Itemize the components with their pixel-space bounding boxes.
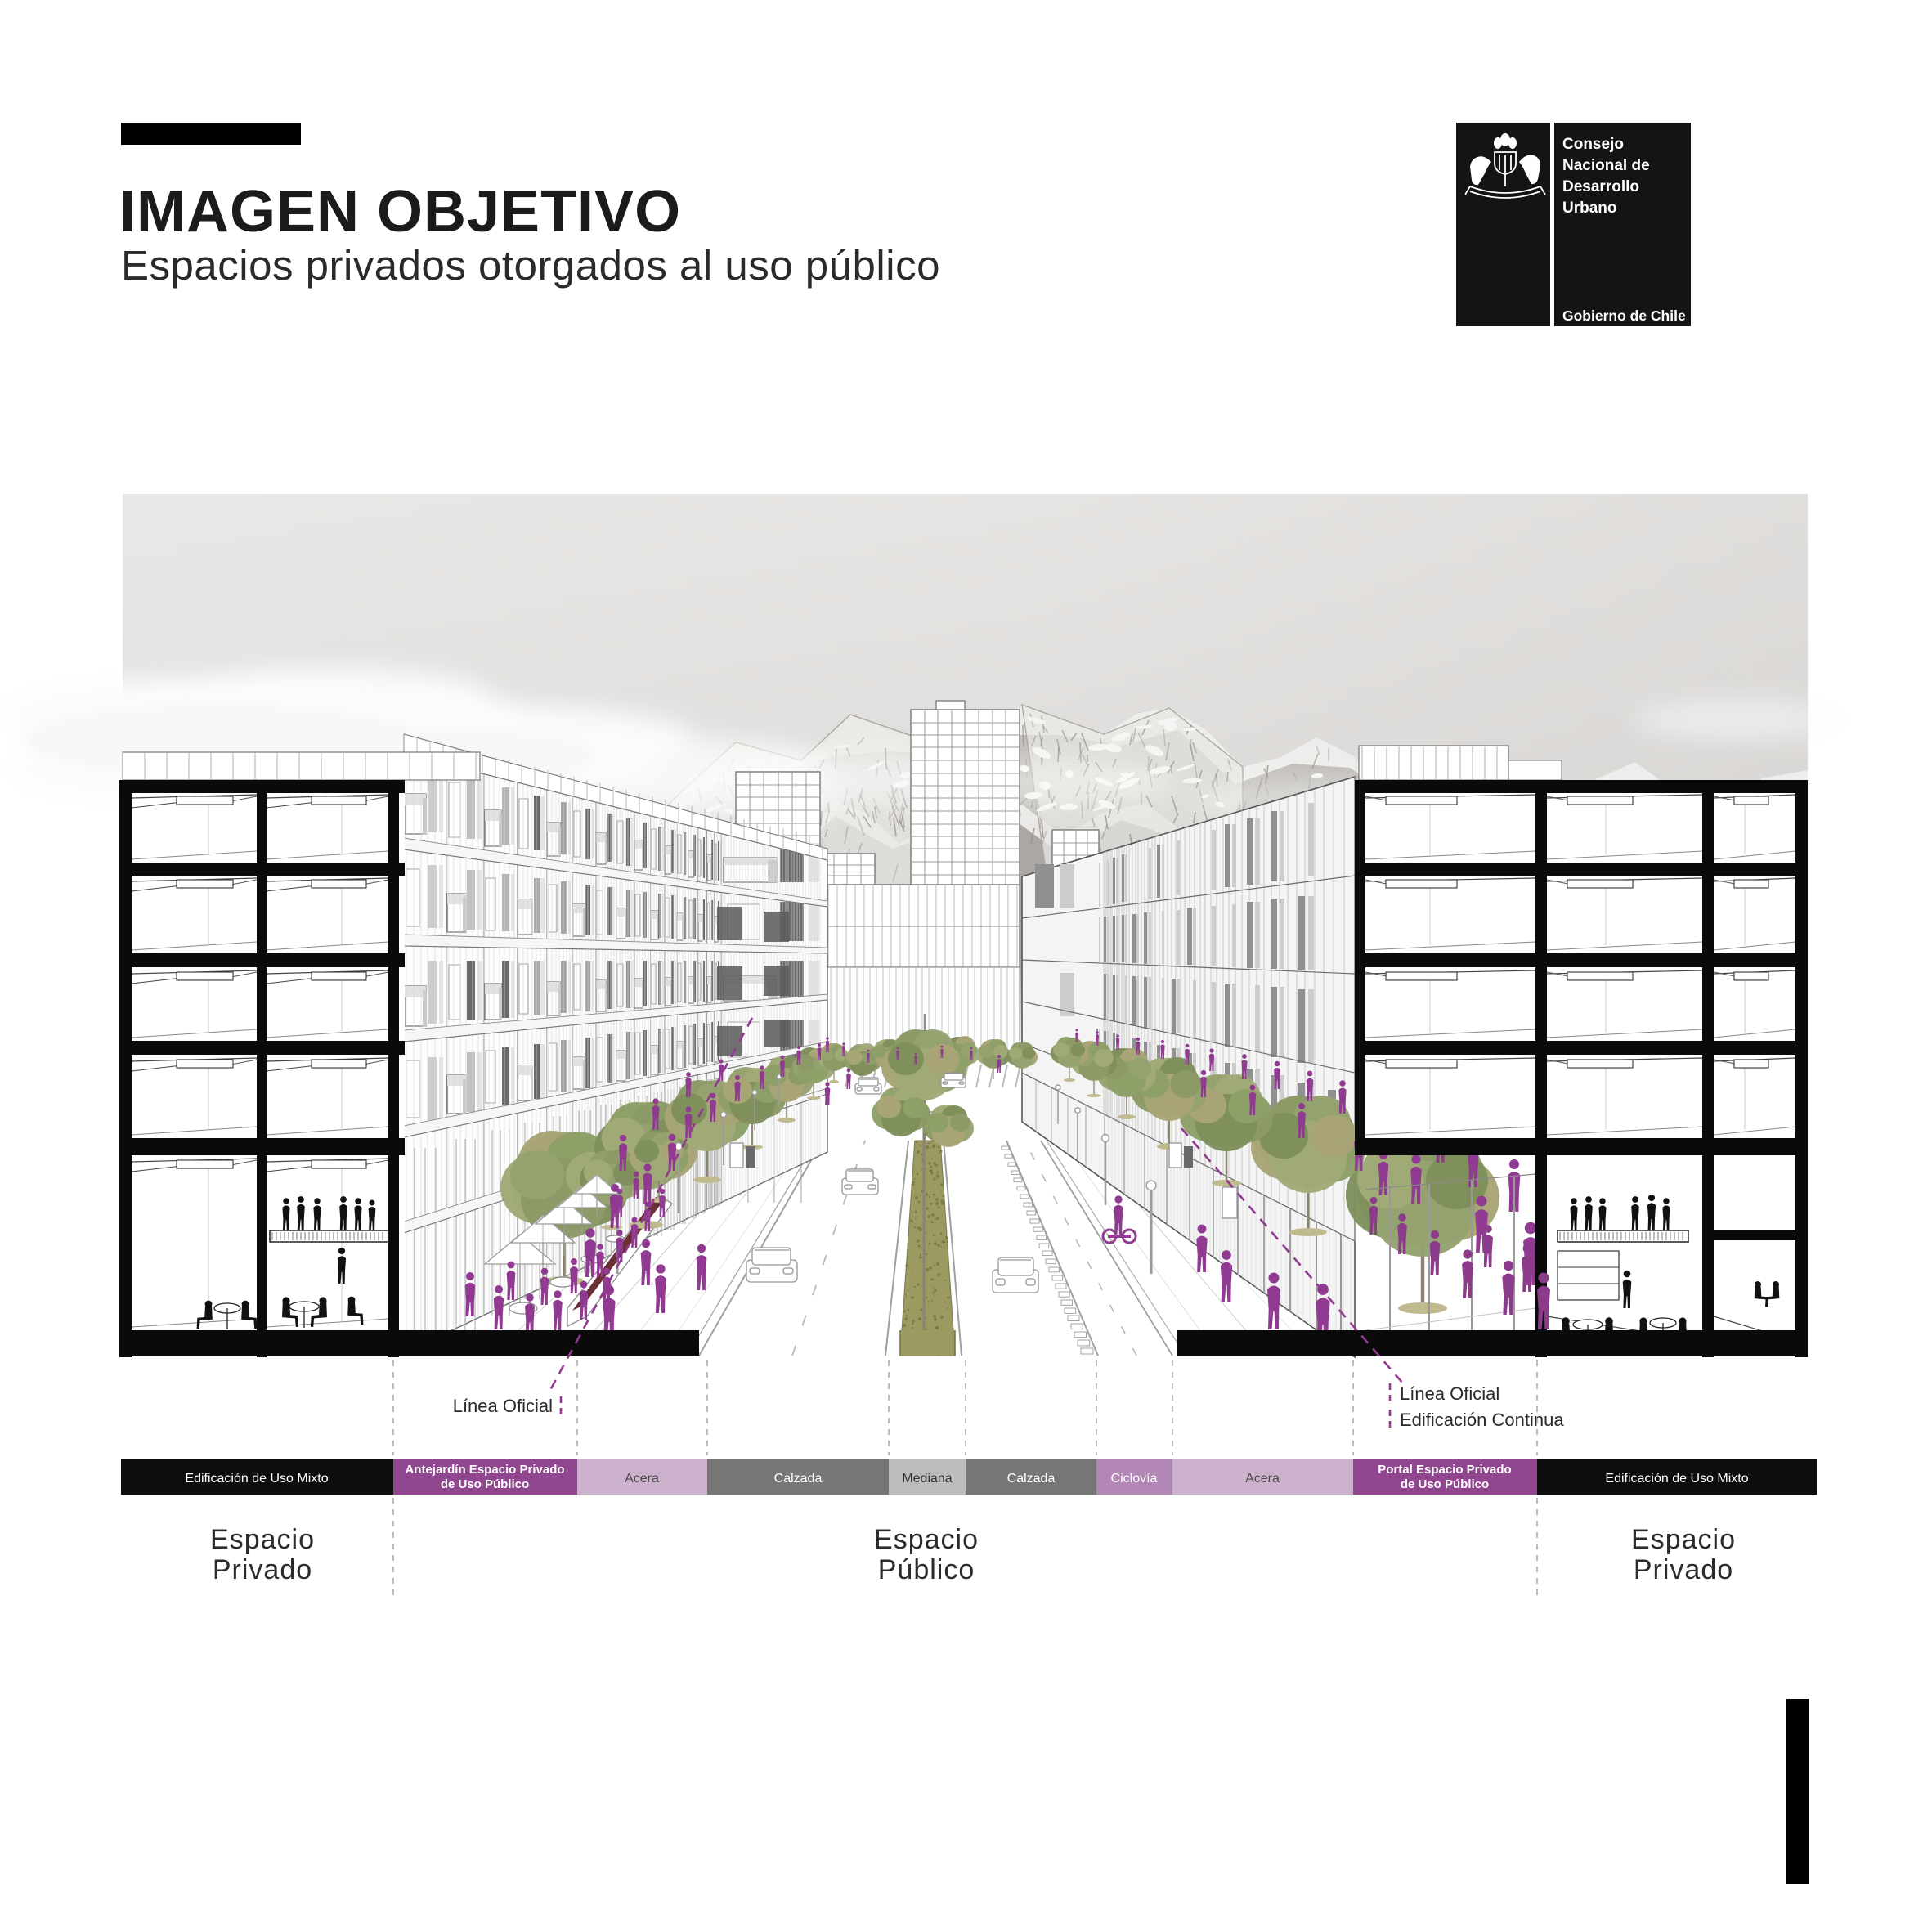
svg-text:Antejardín Espacio Privado: Antejardín Espacio Privado: [405, 1463, 564, 1477]
svg-text:Calzada: Calzada: [774, 1472, 823, 1486]
svg-text:Privado: Privado: [1634, 1554, 1733, 1585]
svg-text:Espacio: Espacio: [874, 1524, 979, 1555]
svg-text:Edificación de Uso Mixto: Edificación de Uso Mixto: [185, 1472, 328, 1486]
svg-text:Línea Oficial: Línea Oficial: [1400, 1383, 1499, 1404]
svg-text:Acera: Acera: [625, 1472, 659, 1486]
svg-text:Calzada: Calzada: [1007, 1472, 1056, 1486]
svg-text:Gobierno de Chile: Gobierno de Chile: [1562, 307, 1686, 324]
svg-text:Privado: Privado: [213, 1554, 312, 1585]
svg-text:Consejo: Consejo: [1562, 136, 1624, 153]
svg-text:Espacios privados otorgados al: Espacios privados otorgados al uso públi…: [121, 242, 940, 289]
svg-text:Nacional de: Nacional de: [1562, 157, 1650, 174]
svg-text:Acera: Acera: [1245, 1472, 1280, 1486]
svg-text:Espacio: Espacio: [210, 1524, 315, 1555]
svg-text:Edificación de Uso Mixto: Edificación de Uso Mixto: [1605, 1472, 1748, 1486]
svg-text:Urbano: Urbano: [1562, 199, 1617, 217]
svg-text:Desarrollo: Desarrollo: [1562, 178, 1639, 195]
svg-text:Ciclovía: Ciclovía: [1111, 1472, 1158, 1486]
svg-text:Espacio: Espacio: [1631, 1524, 1736, 1555]
svg-text:Mediana: Mediana: [902, 1472, 952, 1486]
svg-text:Portal Espacio Privado: Portal Espacio Privado: [1378, 1463, 1511, 1477]
svg-text:IMAGEN OBJETIVO: IMAGEN OBJETIVO: [119, 179, 681, 244]
svg-text:Línea Oficial: Línea Oficial: [453, 1396, 553, 1416]
svg-text:de Uso Público: de Uso Público: [1401, 1477, 1489, 1491]
svg-text:Edificación Continua: Edificación Continua: [1400, 1410, 1564, 1430]
svg-text:de Uso Público: de Uso Público: [441, 1477, 529, 1491]
svg-text:Público: Público: [878, 1554, 975, 1585]
